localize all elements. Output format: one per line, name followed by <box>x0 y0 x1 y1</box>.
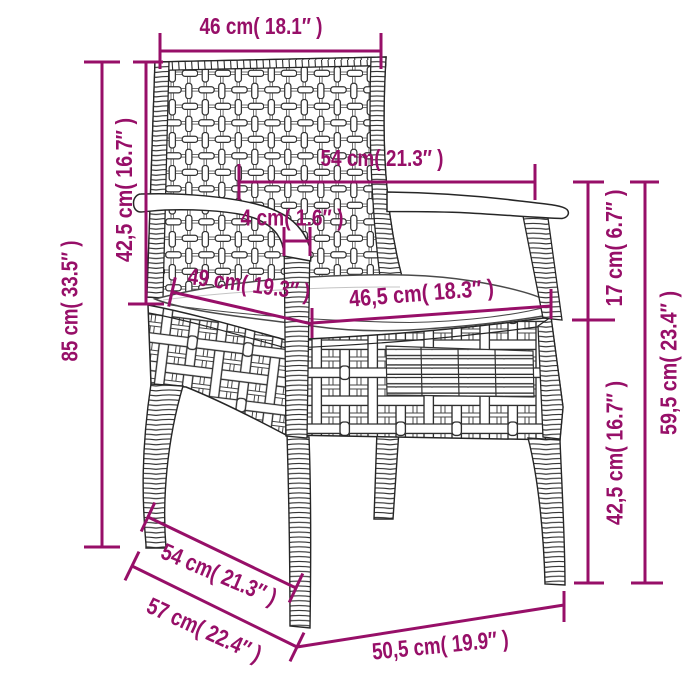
svg-text:46 cm( 18.1″ ): 46 cm( 18.1″ ) <box>200 13 323 39</box>
svg-text:85 cm( 33.5″ ): 85 cm( 33.5″ ) <box>57 241 83 362</box>
svg-text:4 cm( 1.6″ ): 4 cm( 1.6″ ) <box>241 205 344 231</box>
svg-text:17 cm( 6.7″ ): 17 cm( 6.7″ ) <box>601 190 627 307</box>
svg-text:54 cm( 21.3″ ): 54 cm( 21.3″ ) <box>321 145 444 171</box>
svg-text:42,5 cm( 16.7″ ): 42,5 cm( 16.7″ ) <box>602 381 628 525</box>
svg-text:42,5 cm( 16.7″ ): 42,5 cm( 16.7″ ) <box>111 118 137 262</box>
svg-text:59,5 cm( 23.4″ ): 59,5 cm( 23.4″ ) <box>656 291 682 435</box>
